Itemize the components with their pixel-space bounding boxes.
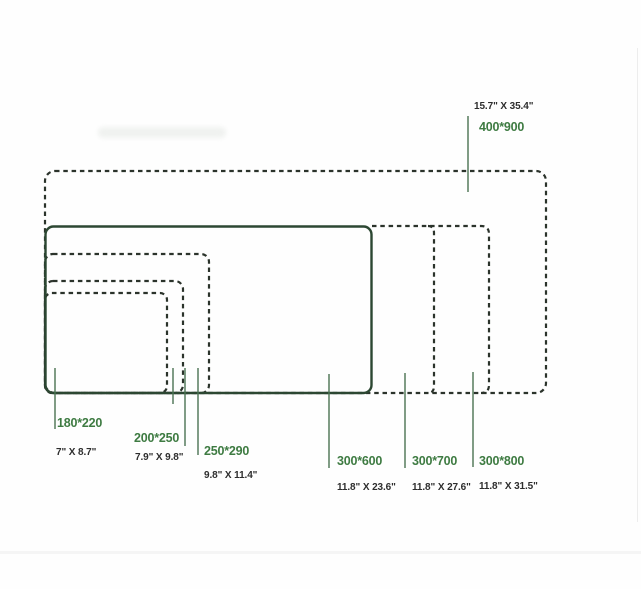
inch-label-200x250: 7.9" X 9.8" xyxy=(135,452,183,464)
mm-label-300x700: 300*700 xyxy=(412,454,457,468)
inch-label-400x900: 15.7" X 35.4" xyxy=(474,101,533,113)
page-edge-line xyxy=(637,48,638,522)
pad-outline-200x250 xyxy=(45,281,183,393)
pad-outline-300x700 xyxy=(428,226,434,393)
mm-label-400x900: 400*900 xyxy=(479,120,524,134)
inch-label-300x800: 11.8" X 31.5" xyxy=(479,481,538,493)
mousepad-size-diagram: 15.7" X 35.4" 400*900 180*220 7" X 8.7" … xyxy=(0,0,641,589)
mm-label-250x290: 250*290 xyxy=(204,444,249,458)
faint-bottom-band xyxy=(0,551,641,554)
mm-label-300x600: 300*600 xyxy=(337,454,382,468)
mm-label-300x800: 300*800 xyxy=(479,454,524,468)
size-outlines-canvas xyxy=(0,0,641,589)
inch-label-300x700: 11.8" X 27.6" xyxy=(412,482,471,494)
inch-label-180x220: 7" X 8.7" xyxy=(56,447,96,459)
mm-label-180x220: 180*220 xyxy=(57,416,102,430)
mm-label-200x250: 200*250 xyxy=(134,431,179,445)
inch-label-300x600: 11.8" X 23.6" xyxy=(337,482,396,494)
faint-watermark-smudge xyxy=(98,127,226,138)
inch-label-250x290: 9.8" X 11.4" xyxy=(204,470,257,482)
pad-outline-180x220 xyxy=(45,293,167,393)
pad-outline-300x800 xyxy=(372,226,489,393)
